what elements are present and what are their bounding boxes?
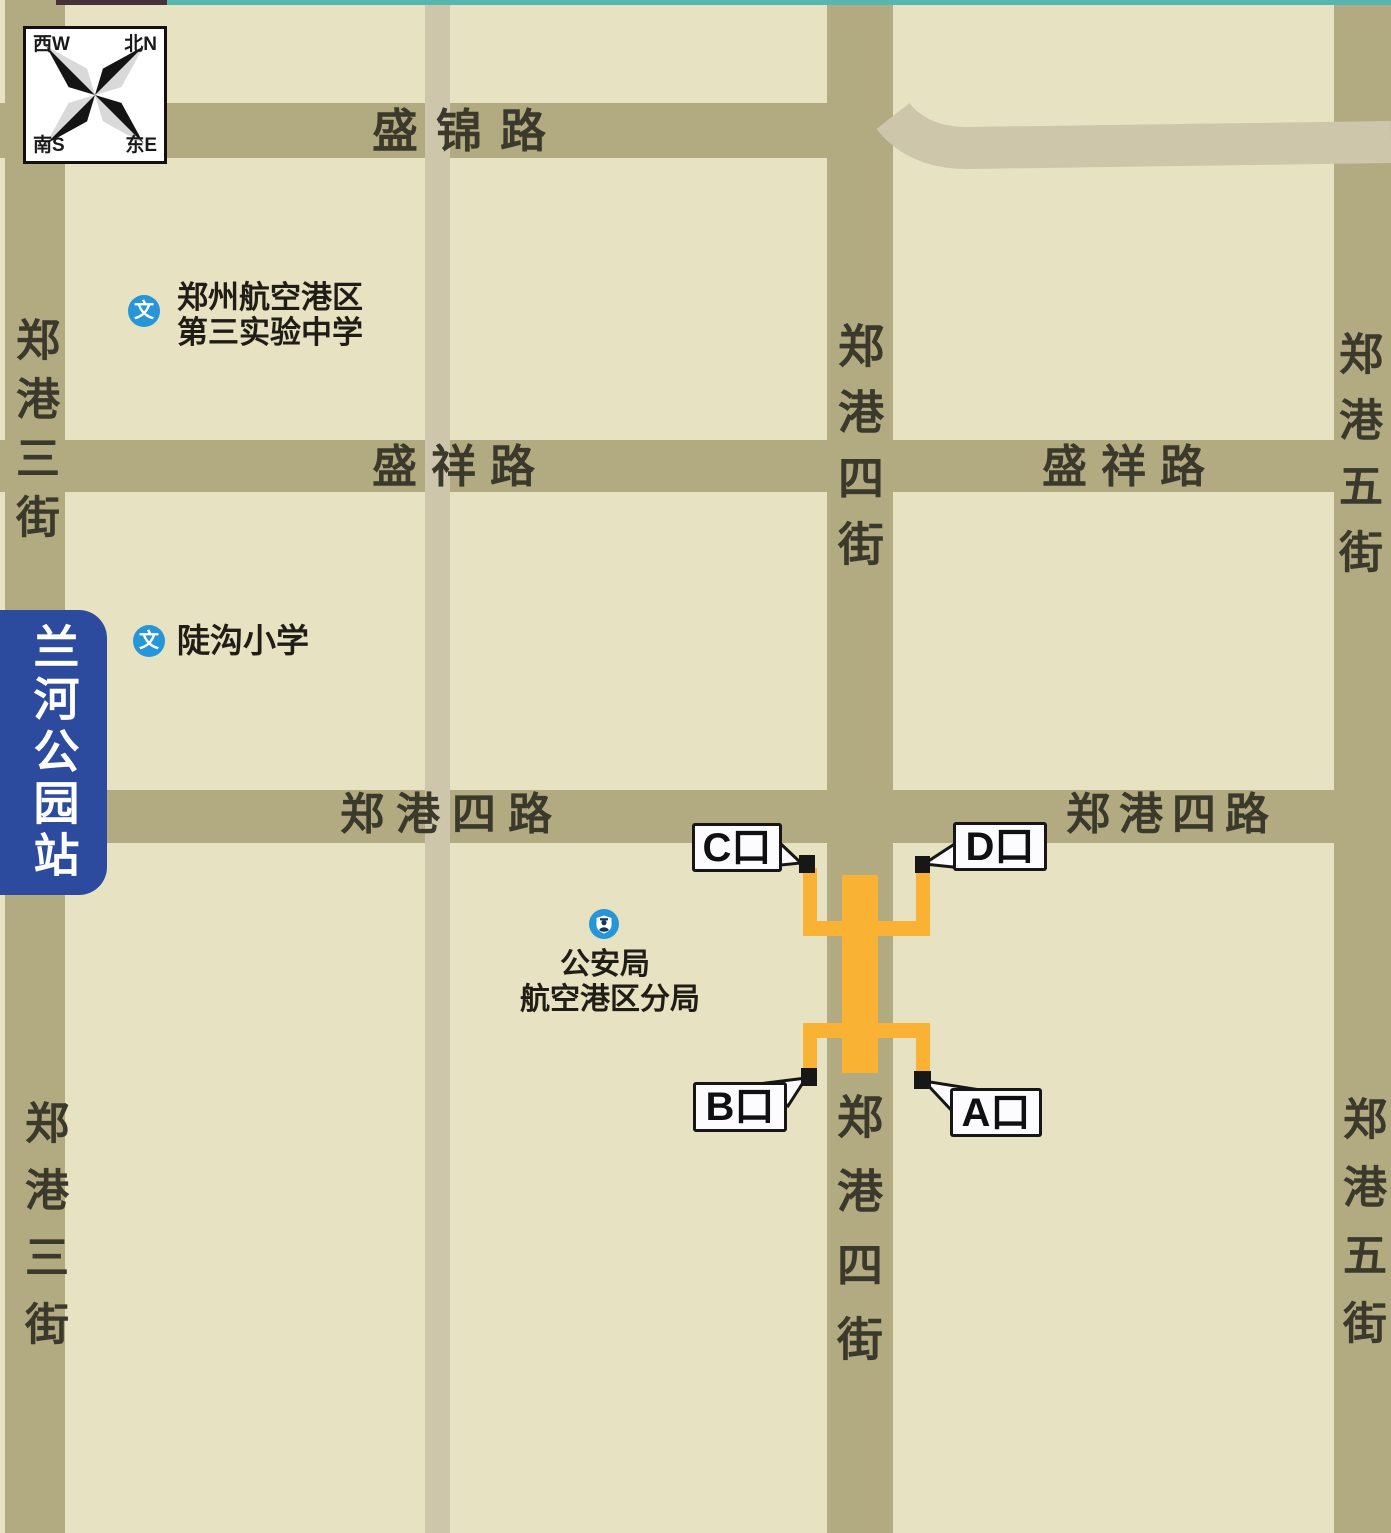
station-overlay: [0, 0, 1391, 1533]
compass-west-label: 西W: [33, 35, 70, 54]
road-label-zhenggang-wu-jie-south: 郑港五街: [1338, 1096, 1382, 1368]
road-shengjin-lu-east-curved: [893, 116, 1391, 148]
road-label-zhenggang-si-lu-west: 郑港四路: [340, 793, 564, 837]
exit-a-marker: [914, 1071, 931, 1089]
exit-a-label: A口: [962, 1093, 1031, 1133]
exit-d-callout: D口: [953, 822, 1047, 871]
compass: 西W 北N 南S 东E: [23, 26, 167, 164]
road-label-zhenggang-si-jie-south: 郑港四街: [834, 1093, 880, 1389]
road-label-shengxiang-lu-west: 盛祥路: [372, 444, 549, 489]
exit-b-label: B口: [706, 1087, 775, 1127]
poi-label-no3-school-line2: 第三实验中学: [177, 317, 363, 348]
road-label-shengjin-lu: 盛锦路: [372, 108, 564, 154]
police-badge-icon: [589, 909, 619, 939]
map-canvas: 盛锦路 盛祥路 盛祥路 郑港四路 郑港四路 郑港三街 郑港三街 郑港四街 郑港四…: [0, 0, 1391, 1533]
poi-label-police-line1: 公安局: [455, 950, 755, 980]
compass-north-label: 北N: [124, 35, 157, 54]
station-footprint: [803, 868, 930, 1073]
road-label-zhenggang-si-lu-east: 郑港四路: [1066, 793, 1278, 837]
road-label-zhenggang-si-jie-north: 郑港四街: [835, 322, 881, 586]
school-icon-glyph: 文: [139, 631, 159, 651]
poi-label-police-line2: 航空港区分局: [460, 985, 760, 1015]
exit-d-marker: [915, 856, 930, 873]
compass-south-label: 南S: [33, 136, 65, 155]
poi-label-no3-school-line1: 郑州航空港区: [177, 282, 363, 313]
exit-b-callout: B口: [693, 1082, 787, 1132]
station-name-label: 兰河公园站: [31, 623, 77, 883]
compass-east-label: 东E: [125, 136, 157, 155]
road-label-zhenggang-wu-jie-north: 郑港五街: [1334, 331, 1378, 595]
exit-c-callout: C口: [692, 823, 782, 872]
road-label-zhenggang-san-jie-south: 郑港三街: [20, 1100, 64, 1368]
school-icon: 文: [133, 625, 165, 657]
school-icon: 文: [128, 295, 160, 327]
school-icon-glyph: 文: [134, 301, 154, 321]
exit-c-label: C口: [703, 828, 772, 868]
exit-b-marker: [801, 1068, 817, 1086]
exit-c-marker: [799, 855, 815, 873]
road-label-shengxiang-lu-east: 盛祥路: [1042, 444, 1219, 489]
exit-d-label: D口: [966, 827, 1035, 867]
road-label-zhenggang-san-jie-north: 郑港三街: [11, 317, 55, 553]
station-name-banner: 兰河公园站: [0, 610, 107, 895]
poi-label-dougou-primary: 陡沟小学: [177, 624, 309, 657]
exit-a-callout: A口: [950, 1088, 1042, 1137]
